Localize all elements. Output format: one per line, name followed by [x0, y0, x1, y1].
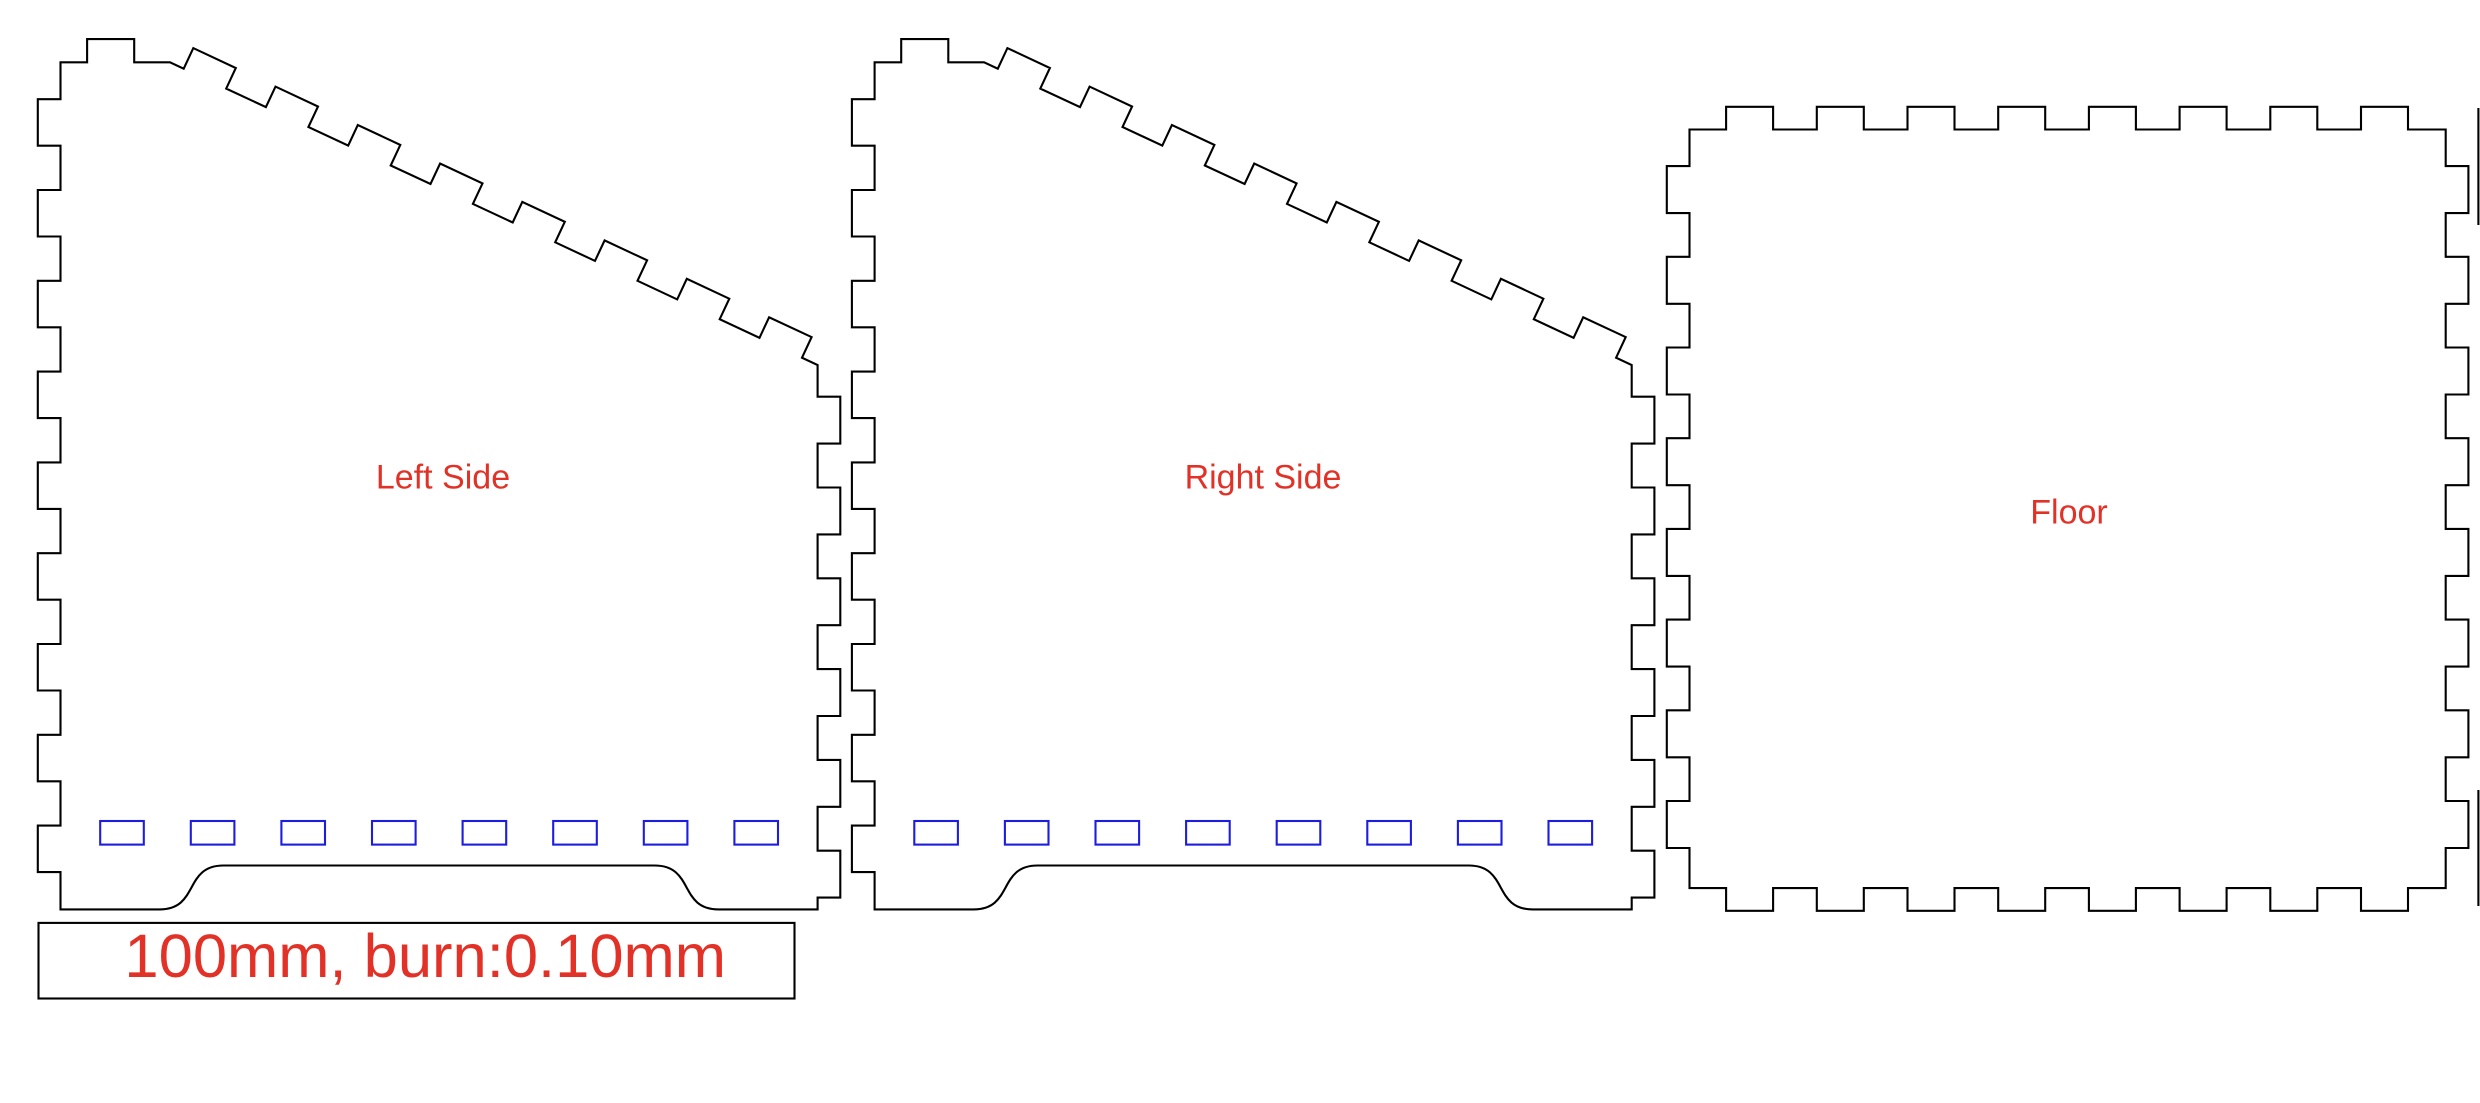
svg-text:Floor: Floor: [2030, 494, 2107, 532]
svg-text:Left Side: Left Side: [376, 459, 510, 497]
svg-text:Right Side: Right Side: [1185, 459, 1342, 497]
svg-text:100mm, burn:0.10mm: 100mm, burn:0.10mm: [124, 922, 726, 991]
